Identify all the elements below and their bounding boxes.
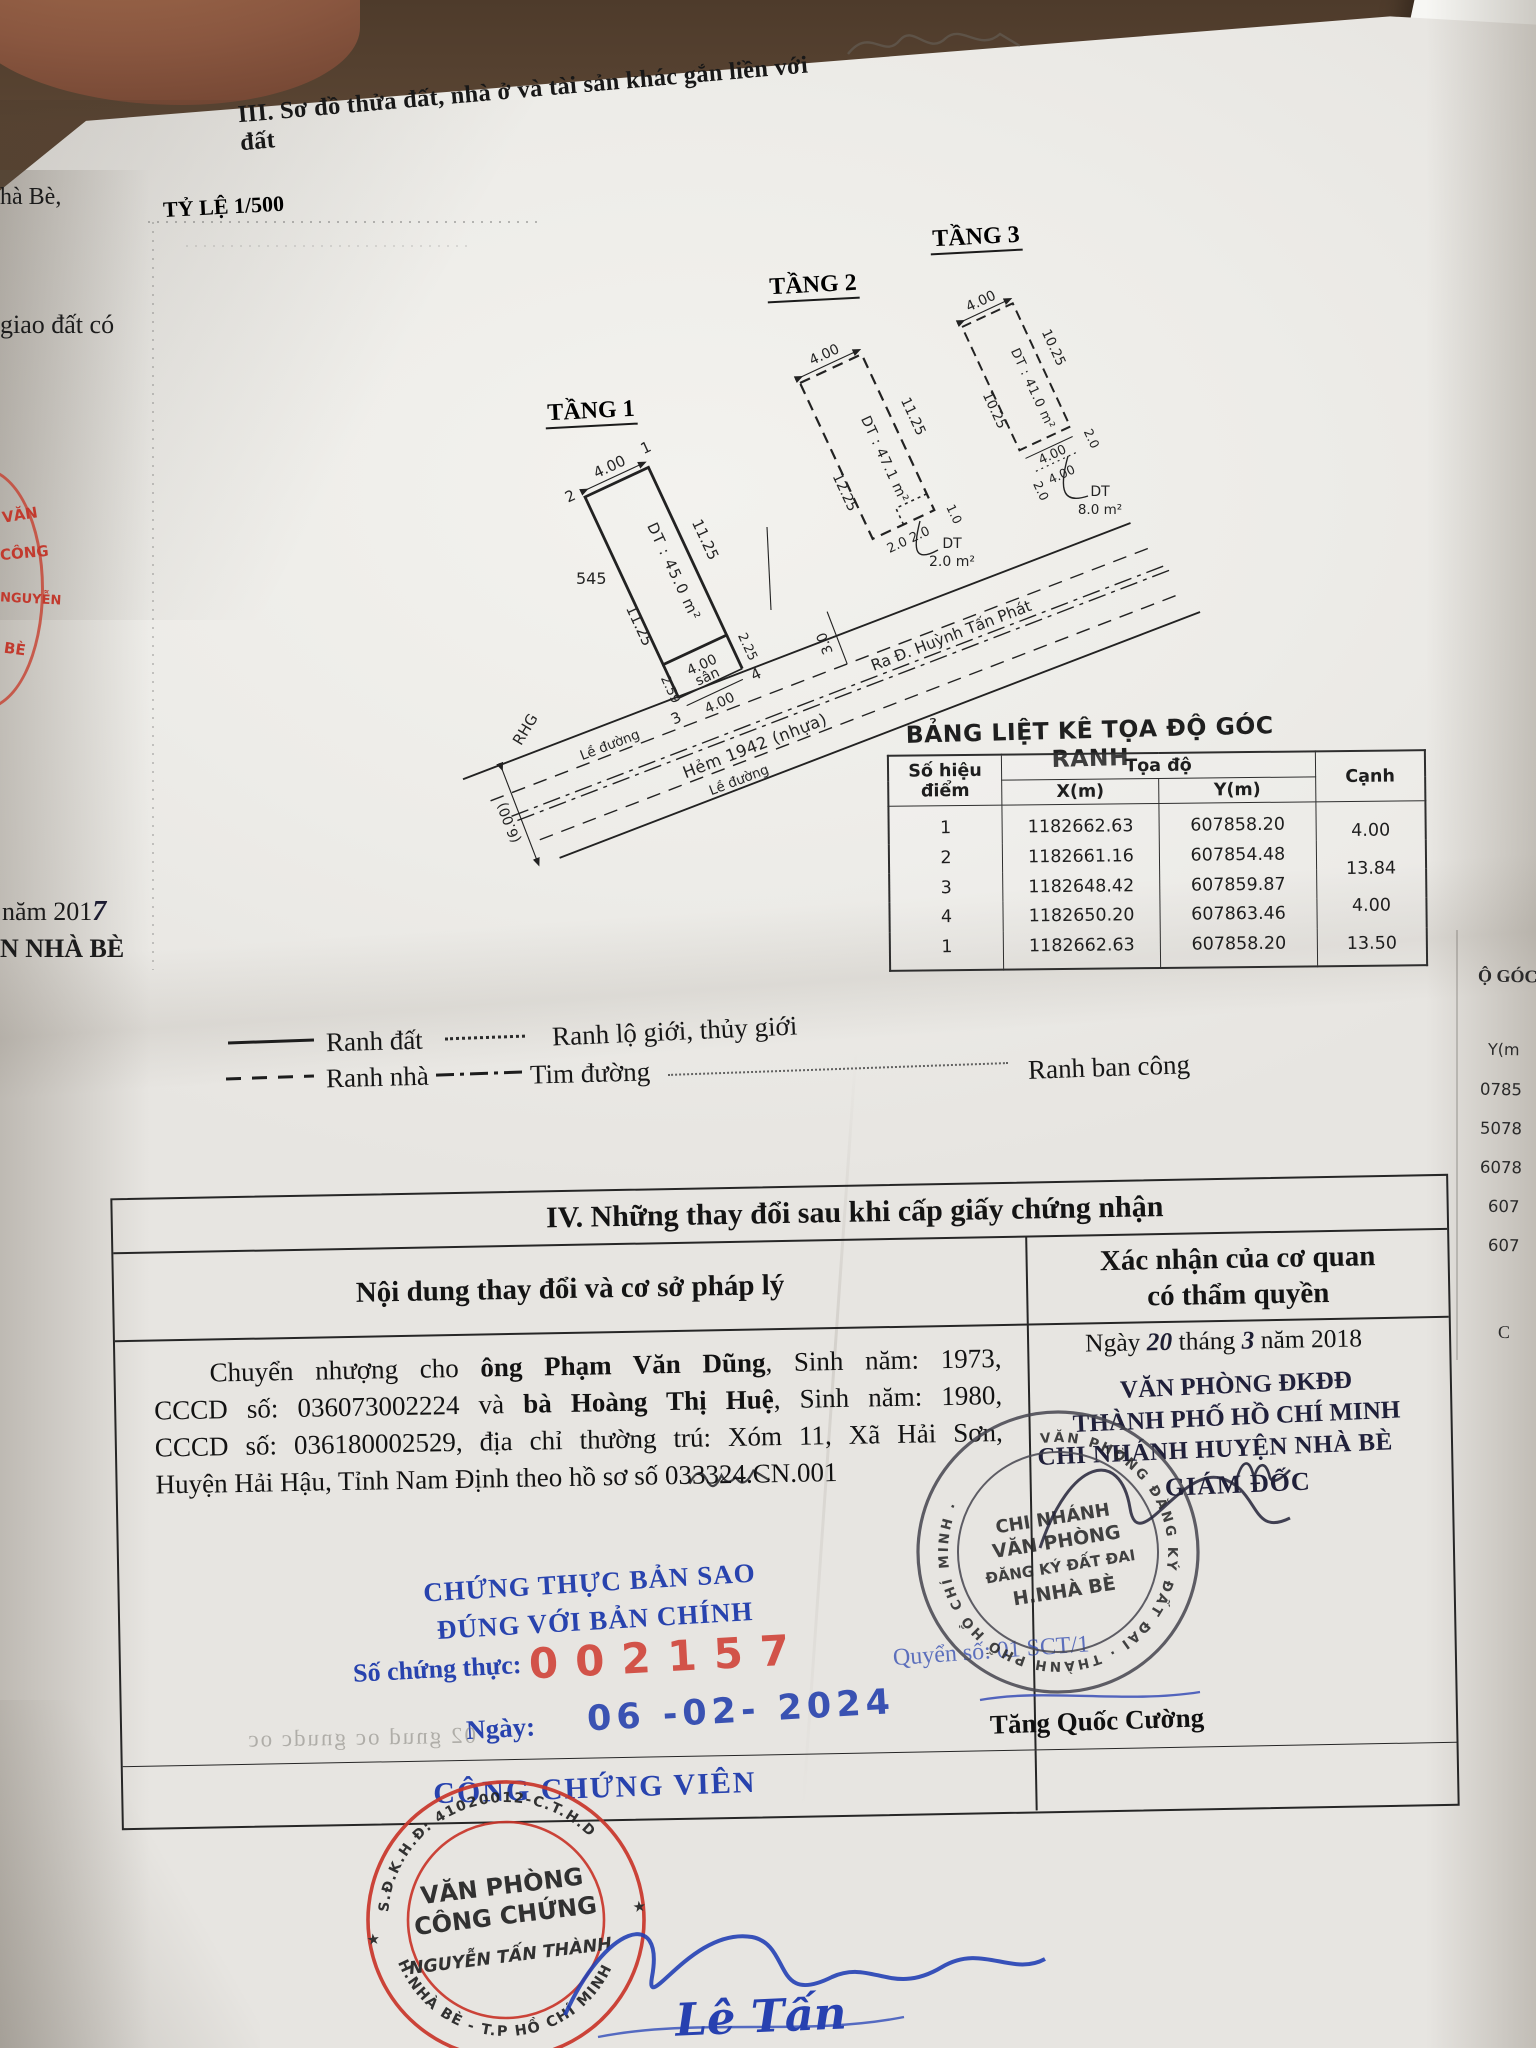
right-edge-fragment: 607 (1488, 1236, 1520, 1256)
date-word: năm 2018 (1260, 1323, 1362, 1354)
section4-content-cell: Chuyển nhượng cho ông Phạm Văn Dũng, Sin… (115, 1326, 1037, 1767)
right-edge-fragment: Y(m (1488, 1040, 1520, 1060)
f1-front-dim: 4.00 (702, 690, 737, 718)
left-edge-red-stamp-text: BÈ (3, 639, 27, 660)
text-run: , Sinh năm: 1980, (773, 1380, 1002, 1414)
edge-values-cell: 4.00 13.84 4.00 13.50 (1316, 801, 1427, 967)
f3-callout-area: 8.0 m² (1078, 502, 1122, 518)
coord-table-wrap: Số hiệu điểm Tọa độ Cạnh X(m) Y(m) 1 118… (887, 749, 1428, 972)
table-row: 1 1182662.63 607858.20 4.00 13.84 4.00 1… (888, 801, 1425, 844)
y-value: 607863.46 (1160, 899, 1317, 930)
f1-top-dim: 4.00 (591, 452, 629, 482)
left-edge-fragment: năm 2017 (2, 896, 106, 928)
legend-label-ranh-dat: Ranh đất (326, 1025, 424, 1059)
right-edge-fragment: Ộ GÓC (1478, 965, 1536, 987)
photographed-land-certificate-page: hà Bè, giao đất có VĂN CÔNG NGUYỄN BÈ nă… (0, 0, 1536, 2048)
text-run: , Sinh năm: 1973, (765, 1343, 1002, 1377)
street-label-rhg: RHG (509, 710, 542, 748)
left-edge-fragment: N NHÀ BÈ (0, 934, 124, 964)
x-value: 1182662.63 (1002, 804, 1159, 844)
right-header-line2: có thẩm quyền (1147, 1275, 1330, 1315)
f1-corner-3: 3 (668, 708, 684, 728)
x-value: 1182662.63 (1003, 930, 1160, 970)
right-edge-fragment: 5078 (1480, 1119, 1522, 1139)
y-value: 607858.20 (1159, 802, 1316, 842)
dotted-frame (148, 222, 538, 970)
coordinate-table: Số hiệu điểm Tọa độ Cạnh X(m) Y(m) 1 118… (887, 749, 1428, 972)
f3-callout-dt: DT (1090, 484, 1110, 500)
f1-san-left-dim: 2.59 (657, 673, 683, 706)
y-value: 607858.20 (1160, 928, 1317, 968)
edge-value: 4.00 (1327, 895, 1415, 916)
legend-label-ranh-nha: Ranh nhà (326, 1061, 430, 1095)
f2-left-dim: 12.25 (829, 471, 860, 514)
point-id: 3 (889, 873, 1003, 904)
col-x-header: X(m) (1002, 779, 1159, 806)
f1-corner-4: 4 (748, 664, 764, 684)
cert-number-label: Số chứng thực: (352, 1650, 522, 1689)
x-value: 1182648.42 (1003, 871, 1160, 902)
x-value: 1182661.16 (1002, 842, 1159, 873)
point-id: 2 (889, 843, 1003, 874)
date-word: Ngày (1085, 1327, 1141, 1357)
f3-bottom-right-dim: 2.0 (1081, 426, 1103, 450)
date-word: tháng (1178, 1326, 1235, 1356)
f2-callout-dt: DT (942, 536, 962, 552)
handwritten-day: 20 (1146, 1327, 1172, 1356)
director-signature-scribble (1010, 1418, 1310, 1598)
f3-left-dim: 10.25 (979, 390, 1010, 432)
x-value: 1182650.20 (1003, 900, 1160, 931)
right-edge-fragment: 0785 (1480, 1080, 1522, 1100)
plot-number: 545 (576, 569, 607, 588)
y-value: 607859.87 (1160, 869, 1317, 900)
text-run: Chuyển nhượng cho (209, 1353, 480, 1388)
left-edge-fragment: giao đất có (0, 310, 114, 340)
section4-right-header: Xác nhận của cơ quan có thẩm quyền (1027, 1230, 1449, 1324)
printed-year-fragment: năm 201 (2, 897, 92, 926)
f1-corner-2: 2 (562, 486, 578, 506)
f1-right-dim: 11.25 (688, 516, 722, 563)
footer-right-cell (1037, 1743, 1458, 1811)
f2-right-dim: 11.25 (897, 395, 928, 438)
faint-handwriting-mark (840, 16, 1030, 72)
col-edge-header: Cạnh (1315, 750, 1425, 802)
col-point-header: Số hiệu điểm (888, 755, 1002, 807)
legend-label-ranh-ban-cong: Ranh ban công (1028, 1049, 1191, 1086)
f2-callout-area: 2.0 m² (929, 554, 975, 570)
f1-corner-1: 1 (638, 437, 654, 457)
edge-value: 4.00 (1327, 820, 1415, 841)
street-half-dim: 3.0 (814, 630, 837, 657)
buyer-name: ông Phạm Văn Dũng (480, 1347, 766, 1382)
right-edge-fragment: 6078 (1480, 1158, 1522, 1178)
handwritten-initials (1228, 1448, 1308, 1492)
cert-date-stamp: 06 -02- 2024 (586, 1682, 896, 1739)
transfer-paragraph: Chuyển nhượng cho ông Phạm Văn Dũng, Sin… (153, 1340, 1004, 1504)
street-width-dim: (6.00) (495, 800, 525, 845)
section4-left-header: Nội dung thay đổi và cơ sở pháp lý (113, 1238, 1028, 1341)
right-edge-fragment: C (1498, 1322, 1510, 1343)
text-run: CCCD số: 036073002224 và (154, 1389, 524, 1426)
y-value: 607854.48 (1159, 840, 1316, 871)
f1-left-dim: 11.25 (622, 602, 656, 649)
left-edge-fragment: hà Bè, (0, 184, 61, 211)
f3-dotted-dim: 4.00 (1046, 462, 1078, 487)
legend-label-tim-duong: Tim đường (530, 1056, 651, 1090)
edge-value: 13.84 (1327, 858, 1415, 879)
edge-value: 13.50 (1328, 933, 1416, 954)
f3-right-dim: 10.25 (1038, 327, 1069, 369)
handwritten-digit: 7 (92, 896, 106, 927)
street-direction-label: Ra Đ. Huỳnh Tấn Phát (868, 597, 1034, 675)
connector-line (767, 527, 771, 610)
f2-area-label: DT : 47.1 m² (857, 414, 911, 506)
f2-step-side-dim: 1.0 (943, 502, 965, 526)
handwritten-month: 3 (1241, 1325, 1254, 1354)
point-id: 4 (889, 902, 1003, 933)
right-header-line1: Xác nhận của cơ quan (1100, 1238, 1376, 1279)
underlying-page-edge (1456, 930, 1458, 1360)
point-id: 1 (888, 805, 1002, 844)
f3-top-dim: 4.00 (964, 288, 999, 316)
star-icon: ★ (366, 1930, 382, 1950)
left-edge-red-stamp-text: NGUYỄN (0, 590, 62, 608)
col-y-header: Y(m) (1159, 777, 1316, 804)
f3-bottom-left-dim: 2.0 (1030, 479, 1052, 503)
f2-step-dim: 2.0 2.0 (885, 524, 933, 557)
point-id: 1 (890, 931, 1004, 971)
col-coord-header: Tọa độ (1001, 751, 1315, 780)
floor2-plot: 4.00 12.25 11.25 DT : 47.1 m² 2.0 2.0 1.… (778, 322, 970, 567)
buyer-name: bà Hoàng Thị Huệ (523, 1384, 774, 1419)
right-edge-fragment: 607 (1488, 1197, 1520, 1217)
approval-date-line: Ngày 20 tháng 3 năm 2018 (1085, 1323, 1362, 1358)
handwritten-flourish (683, 1456, 780, 1498)
floor3-plot: 4.00 10.25 10.25 DT : 41.0 m² 4.00 2.0 2… (940, 272, 1118, 507)
